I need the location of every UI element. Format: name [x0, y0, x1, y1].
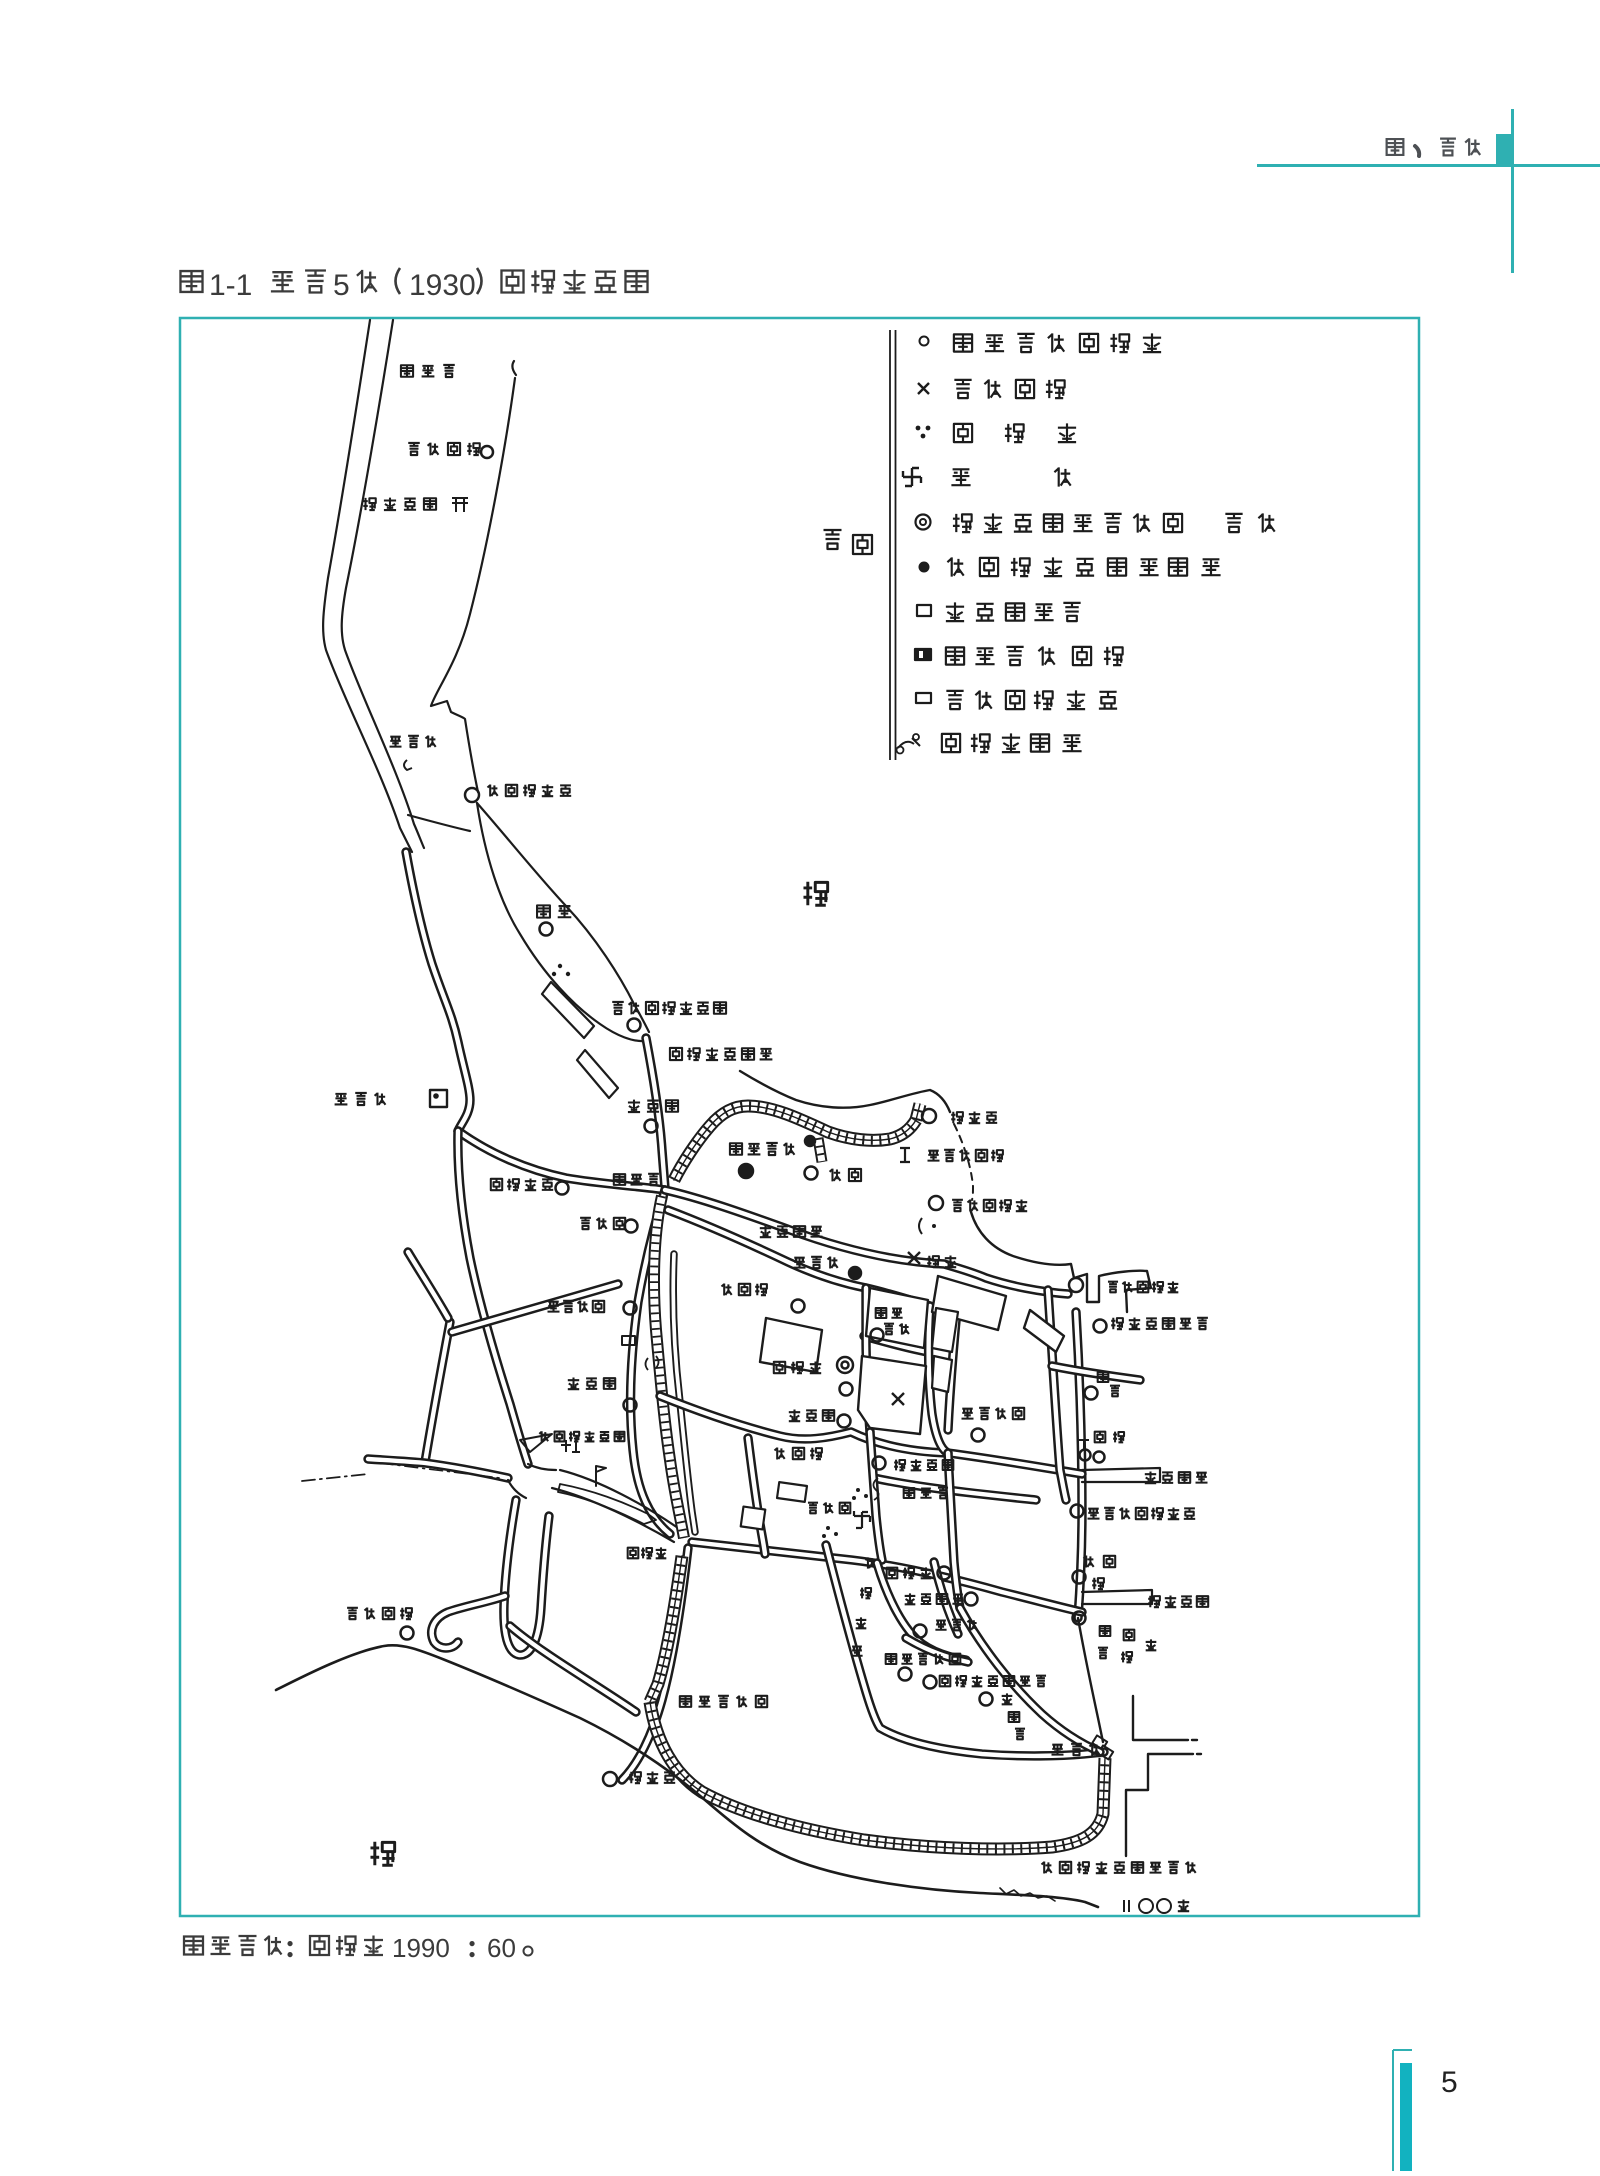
svg-text:1930: 1930 [409, 269, 476, 302]
svg-text:1990: 1990 [392, 1933, 450, 1963]
svg-text:5: 5 [1441, 2066, 1458, 2099]
svg-text:60: 60 [487, 1933, 516, 1963]
svg-text:5: 5 [333, 269, 350, 302]
svg-text:1-1: 1-1 [209, 269, 252, 302]
